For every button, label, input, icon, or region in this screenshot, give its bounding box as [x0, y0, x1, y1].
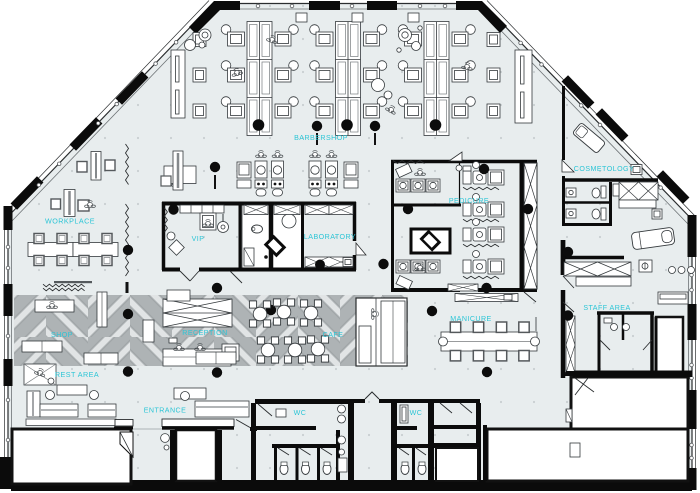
svg-text:WC: WC — [410, 409, 423, 417]
svg-text:RECEPTION: RECEPTION — [182, 329, 227, 337]
svg-text:WORKPLACE: WORKPLACE — [45, 217, 95, 226]
svg-text:REST AREA: REST AREA — [55, 370, 99, 379]
svg-text:STAFF AREA: STAFF AREA — [583, 304, 630, 312]
svg-text:SHOP: SHOP — [51, 331, 73, 339]
svg-text:COSMETOLOGY: COSMETOLOGY — [574, 165, 634, 173]
svg-text:MANICURE: MANICURE — [450, 315, 491, 323]
svg-text:PEDICURE: PEDICURE — [449, 197, 489, 205]
svg-text:VIP: VIP — [192, 235, 205, 243]
svg-text:ENTRANCE: ENTRANCE — [144, 407, 187, 415]
svg-text:BARBERSHOP: BARBERSHOP — [294, 134, 348, 142]
svg-text:LABORATORY: LABORATORY — [304, 233, 356, 241]
svg-text:WC: WC — [294, 409, 307, 417]
svg-text:CAFE: CAFE — [323, 331, 344, 339]
